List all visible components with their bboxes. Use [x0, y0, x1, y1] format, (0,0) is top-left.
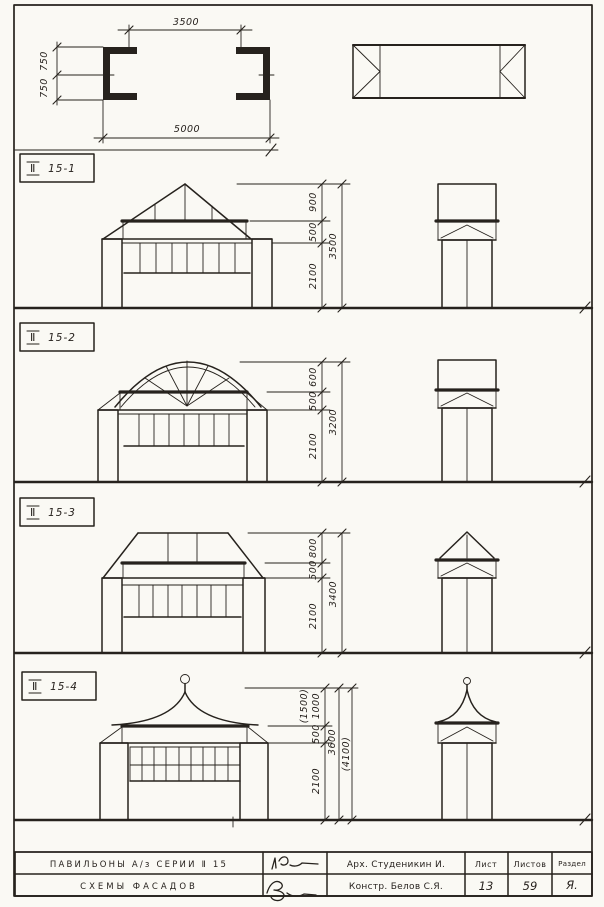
sheets-total: 59: [523, 879, 538, 893]
window-mullions: [139, 414, 229, 446]
facade-schemes-drawing: 3500 5000 750 750 Ⅱ: [0, 0, 604, 907]
elevation-front-15-4: [100, 675, 268, 821]
dim-total: 3600: [327, 729, 338, 755]
plan-right-wall: [236, 47, 270, 100]
right-pylon: [247, 410, 267, 482]
section-15-4: Ⅱ 15-4: [15, 672, 592, 827]
right-pylon: [243, 578, 265, 653]
section-15-2: Ⅱ 15-2: [15, 323, 592, 487]
elevation-front-15-2: [98, 361, 267, 482]
label-prefix: Ⅱ: [32, 680, 38, 693]
roof-slope: [228, 533, 263, 578]
finial-ball: [181, 675, 190, 684]
dim-opening: 2100: [308, 263, 319, 289]
roof-slope: [103, 184, 185, 239]
label-code: 15-4: [50, 681, 78, 693]
dimensions-15-3: 800 500 2100 3400: [248, 529, 350, 657]
arch-spokes: [145, 361, 229, 406]
eave-brace: [248, 727, 268, 743]
dim-total: 3400: [328, 581, 339, 607]
right-pylon: [240, 743, 268, 820]
section-label-15-1: Ⅱ 15-1: [20, 154, 94, 182]
roof-slope: [103, 533, 138, 578]
finial-ball: [464, 678, 471, 685]
elevation-front-15-1: [102, 184, 272, 308]
tent-roof-curve: [438, 690, 467, 722]
dim-roof: 900: [308, 192, 319, 212]
dim-frieze: 500: [308, 222, 319, 242]
eave-brace: [100, 727, 122, 743]
elevation-front-15-3: [102, 533, 265, 653]
dim-opening: 2100: [308, 433, 319, 459]
plan-dim-bottom: 5000: [94, 100, 279, 143]
window-grid: [130, 747, 240, 781]
dimensions-15-4: (1500) 1000 500 2100 3600 (4100): [245, 684, 358, 824]
elevation-side-15-3: [436, 532, 498, 653]
plan-depth-lower: 750: [39, 78, 50, 98]
sheet-label: Лист: [475, 860, 497, 869]
label-code: 15-1: [48, 163, 76, 175]
drawing-sheet: 3500 5000 750 750 Ⅱ: [0, 0, 604, 907]
label-prefix: Ⅱ: [30, 162, 36, 175]
left-pylon: [100, 743, 128, 820]
dim-roof: 1000: [311, 693, 322, 719]
section-15-3: Ⅱ 15-3: [15, 498, 592, 658]
dimensions-15-2: 600 500 2100 3200: [240, 358, 350, 486]
left-pylon: [102, 239, 122, 308]
right-pylon: [252, 239, 272, 308]
elevation-side-15-4: [436, 678, 498, 821]
label-prefix: Ⅱ: [30, 506, 36, 519]
section-label-15-2: Ⅱ 15-2: [20, 323, 94, 351]
eave-brace: [98, 393, 120, 410]
hip-line: [500, 45, 525, 72]
engineer-name: Констр. Белов С.Я.: [349, 882, 443, 892]
gable-chevron: [441, 727, 493, 741]
tent-roof-curve: [467, 690, 496, 722]
section-label-15-3: Ⅱ 15-3: [20, 498, 94, 526]
hip-line: [500, 72, 525, 99]
dim-frieze: 500: [311, 724, 322, 744]
dim-opening: 2100: [308, 603, 319, 629]
signature-engineer: [267, 881, 316, 900]
label-code: 15-3: [48, 507, 76, 519]
window-mullions: [139, 585, 226, 617]
dim-frieze: 500: [308, 560, 319, 580]
arch-inner: [121, 367, 255, 407]
roof-slope: [185, 184, 251, 239]
dim-total: 3500: [328, 233, 339, 259]
arch-outer: [115, 362, 261, 407]
dim-roof-alt: (1500): [299, 689, 310, 724]
plan-view-walls: [99, 47, 274, 100]
plan-dim-top: 3500: [118, 17, 252, 47]
dim-total-alt: (4100): [341, 737, 352, 772]
dim-frieze: 500: [308, 391, 319, 411]
project-title: ПАВИЛЬОНЫ А/з СЕРИИ Ⅱ 15: [50, 860, 228, 870]
left-pylon: [102, 578, 122, 653]
gable-chevron: [441, 563, 493, 576]
plan-depth-upper: 750: [39, 51, 50, 71]
drawing-title: СХЕМЫ ФАСАДОВ: [80, 882, 198, 892]
section-label-15-4: Ⅱ 15-4: [22, 672, 96, 700]
razdel-label: Раздел: [558, 859, 586, 868]
gable-chevron: [441, 225, 493, 238]
elevation-side-15-1: [436, 184, 498, 308]
tent-roof-curve: [185, 692, 258, 725]
left-pylon: [98, 410, 118, 482]
plan-bottom-width: 5000: [174, 124, 200, 135]
window-mullions: [140, 243, 235, 273]
title-block: ПАВИЛЬОНЫ А/з СЕРИИ Ⅱ 15 СХЕМЫ ФАСАДОВ А…: [15, 852, 592, 901]
section-15-1: Ⅱ 15-1: [15, 154, 592, 313]
plan-view-roof: [353, 45, 525, 98]
plan-dim-left: 750 750: [39, 42, 103, 105]
elevation-side-15-2: [436, 360, 498, 482]
sheet-number: 13: [479, 879, 494, 893]
razdel-value: Я.: [565, 878, 578, 892]
hip-line: [353, 45, 380, 72]
plan-left-wall: [103, 47, 137, 100]
label-code: 15-2: [48, 332, 76, 344]
architect-name: Арх. Студеникин И.: [347, 860, 445, 870]
dim-roof: 600: [308, 367, 319, 387]
dim-roof: 800: [308, 538, 319, 558]
signature-architect: [272, 857, 318, 869]
dim-total: 3200: [328, 409, 339, 435]
gable-chevron: [441, 393, 493, 406]
dim-opening: 2100: [311, 768, 322, 794]
label-prefix: Ⅱ: [30, 331, 36, 344]
tent-roof-curve: [112, 692, 185, 725]
sheets-label: Листов: [514, 860, 547, 869]
plan-top-width: 3500: [173, 17, 199, 28]
hip-line: [353, 72, 380, 99]
dimensions-15-1: 900 500 2100 3500: [237, 180, 350, 312]
